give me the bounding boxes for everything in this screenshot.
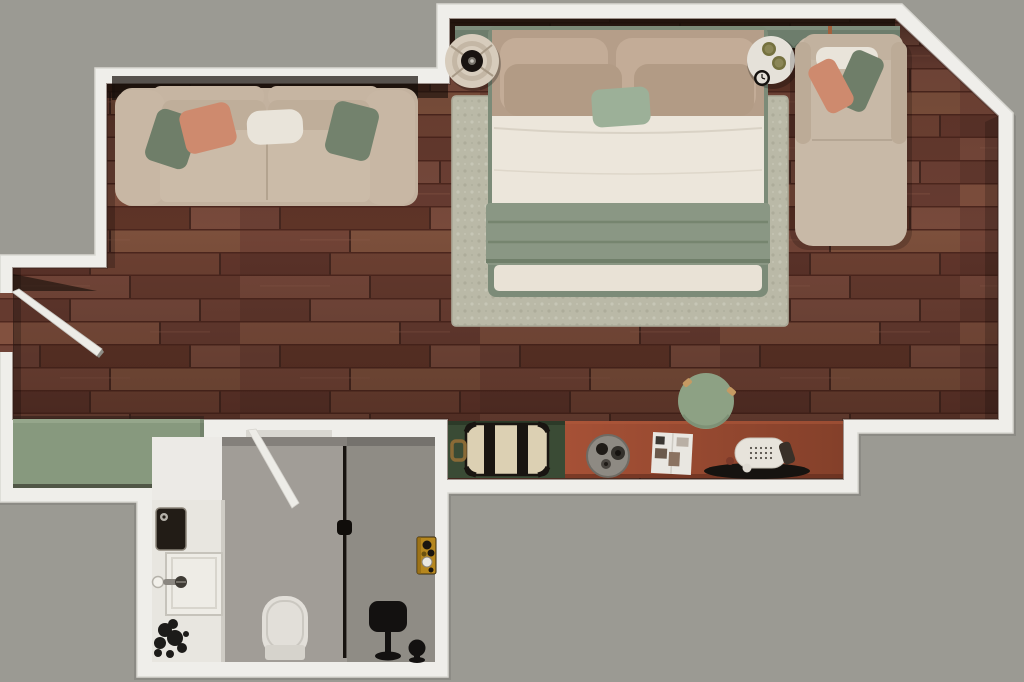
luggage-bench xyxy=(448,421,565,478)
throw-blanket xyxy=(486,203,770,265)
chaise-lounge xyxy=(790,34,912,250)
bed-pillows xyxy=(500,38,756,128)
vintage-trunk xyxy=(452,424,548,475)
toilet xyxy=(262,596,308,660)
shower-controls xyxy=(417,537,436,574)
wall-sink-box xyxy=(156,508,186,550)
entry-opening xyxy=(0,293,13,352)
three-seat-sofa xyxy=(112,76,418,206)
open-magazine xyxy=(651,432,693,475)
bathroom xyxy=(152,429,436,663)
floorplan-render xyxy=(0,0,1024,682)
serving-tray xyxy=(587,435,629,477)
bed-footer xyxy=(494,265,762,291)
sofa-bolster xyxy=(246,109,304,146)
floorplan-svg xyxy=(0,0,1024,682)
vanity-counter xyxy=(152,500,225,662)
sage-accent-pillow xyxy=(591,86,652,128)
shower-stool xyxy=(409,640,426,664)
double-bed xyxy=(486,26,770,297)
alarm-clock xyxy=(754,70,770,86)
writing-desk xyxy=(565,421,843,479)
